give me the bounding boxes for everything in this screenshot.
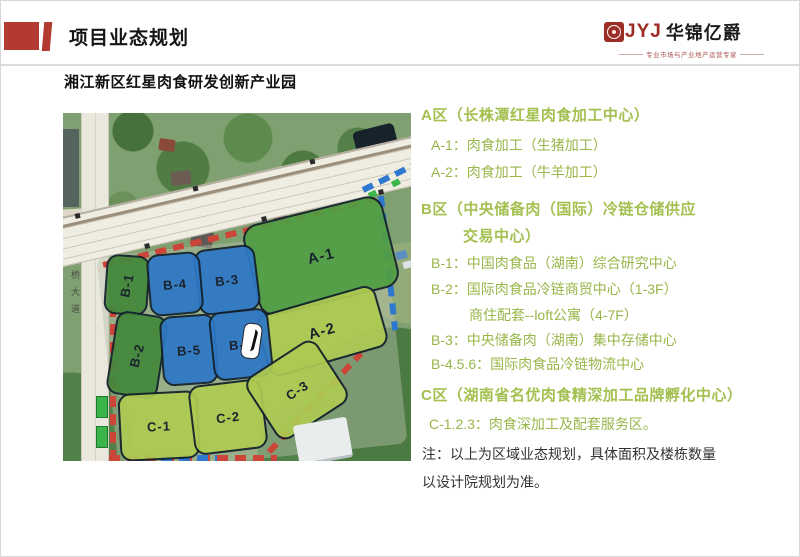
slide: 项目业态规划 JYJ 华锦亿爵 专业市场与产业地产运营专家 湘江新区红星肉食研发… <box>0 0 800 557</box>
section-b-item-3: B-3：中央储备肉（湖南）集中存储中心 <box>431 330 677 350</box>
house <box>158 138 176 152</box>
section-a-item-2: A-2：肉食加工（牛羊加工） <box>431 162 607 182</box>
logo-tagline: 专业市场与产业地产运营专家 <box>646 49 737 59</box>
tagline-rule-right <box>740 54 764 55</box>
tagline-rule-left <box>619 54 643 55</box>
white-building <box>293 417 353 461</box>
section-a-heading: A区（长株潭红星肉食加工中心） <box>421 104 649 125</box>
section-a-item-1: A-1：肉食加工（生猪加工） <box>431 135 607 155</box>
house <box>170 170 191 186</box>
zone-c1-label: C-1 <box>147 418 172 434</box>
pylon-marker <box>310 159 316 165</box>
section-b-item-2: B-2：国际肉食品冷链商贸中心（1-3F） <box>431 279 678 299</box>
section-c-item-1: C-1.2.3：肉食深加工及配套服务区。 <box>429 414 657 434</box>
logo-company-name: 华锦亿爵 <box>666 19 742 45</box>
zone-b3-label: B-3 <box>214 271 240 289</box>
page-title: 项目业态规划 <box>69 23 189 50</box>
company-logo: JYJ 华锦亿爵 专业市场与产业地产运营专家 <box>604 19 779 59</box>
logo-tagline-row: 专业市场与产业地产运营专家 <box>604 49 779 59</box>
zone-a1-label: A-1 <box>306 244 336 267</box>
water-body <box>63 129 79 207</box>
section-b-item-2-cont: 商住配套--loft公寓（4-7F） <box>469 305 638 325</box>
site-plan-map: 黄桥大道 A-1 A-2 B-1 B-2 B-3 B-4 B-5 B-6 <box>63 113 411 461</box>
zone-b2-label: B-2 <box>127 341 148 368</box>
section-c-heading: C区（湖南省名优肉食精深加工品牌孵化中心） <box>421 384 742 405</box>
zone-c2-label: C-2 <box>215 408 241 426</box>
slide-subtitle: 湘江新区红星肉食研发创新产业园 <box>64 71 297 92</box>
logo-letters: JYJ <box>625 21 662 43</box>
blue-roof-house <box>395 250 408 260</box>
zone-a2-label: A-2 <box>307 319 338 343</box>
pylon-marker <box>192 186 198 192</box>
zone-c3-label: C-3 <box>283 377 311 403</box>
pylon-marker <box>144 243 150 249</box>
logo-row: JYJ 华锦亿爵 <box>604 19 779 45</box>
logo-seal-h-icon <box>604 22 624 42</box>
zone-b4: B-4 <box>145 251 204 317</box>
zone-b5-label: B-5 <box>177 342 202 359</box>
note-line-1: 注：以上为区域业态规划，具体面积及楼栋数量 <box>422 444 716 464</box>
green-marker <box>96 396 108 418</box>
section-b-heading-line1: B区（中央储备肉（国际）冷链仓储供应 <box>421 198 696 219</box>
zone-b4-label: B-4 <box>162 275 187 292</box>
pylon-marker <box>75 213 81 219</box>
title-accent-strip <box>42 22 53 51</box>
header-divider <box>1 64 800 66</box>
section-b-item-1: B-1：中国肉食品（湖南）综合研究中心 <box>431 253 677 273</box>
green-marker <box>96 426 108 448</box>
white-roof-house <box>402 260 411 269</box>
zone-b1-label: B-1 <box>117 272 137 299</box>
note-line-2: 以设计院规划为准。 <box>422 472 548 492</box>
section-b-item-4: B-4.5.6：国际肉食品冷链物流中心 <box>431 354 644 374</box>
section-b-heading-line2: 交易中心） <box>463 225 541 246</box>
title-accent-block <box>4 22 39 50</box>
zone-b1: B-1 <box>103 254 151 317</box>
